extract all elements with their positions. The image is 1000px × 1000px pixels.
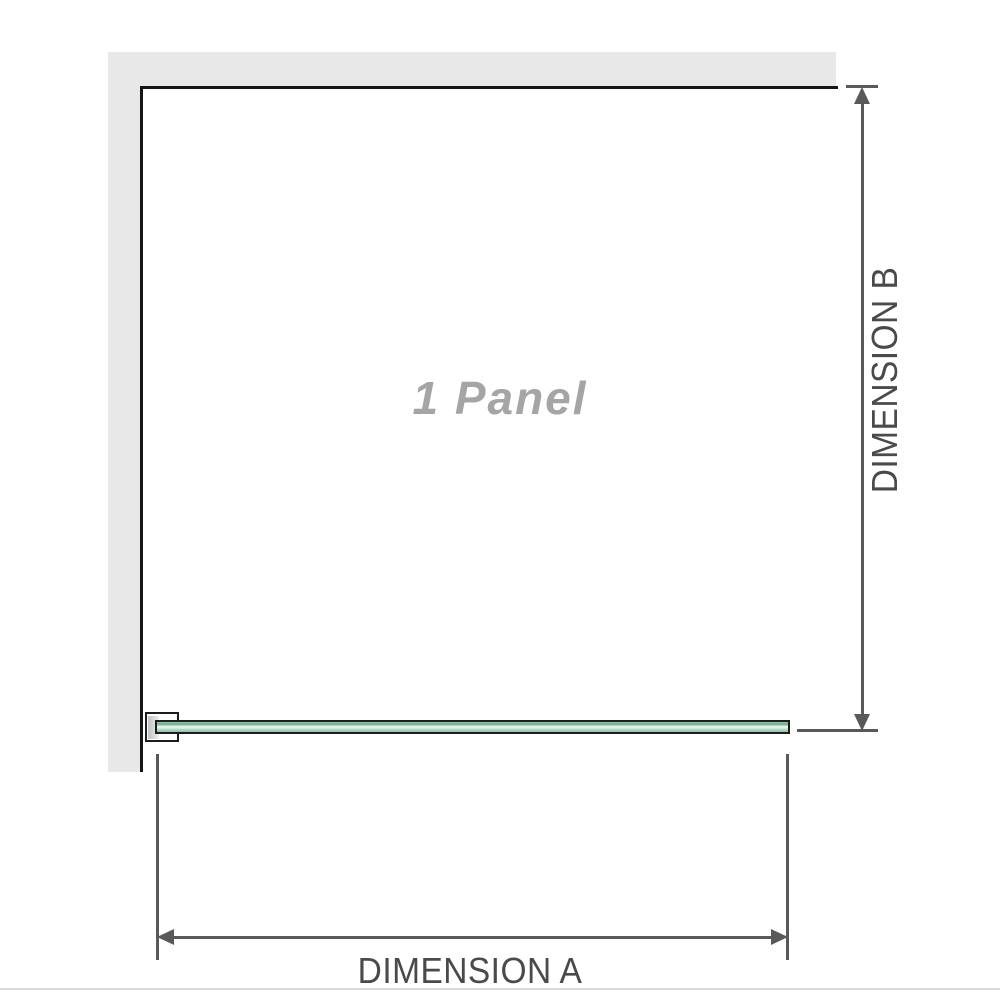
wall-top-strip [108,52,836,86]
panel-outline-left [140,86,143,772]
dimension-a-line [170,936,775,939]
panel-outline-top [140,86,838,89]
shower-panel-diagram: 1 Panel DIMENSION B DIMENSION A [0,0,1000,1000]
dimension-a-label: DIMENSION A [358,950,583,992]
glass-panel-bar [155,720,790,734]
dimension-b-label: DIMENSION B [864,267,906,493]
arrow-left-icon [157,929,174,945]
arrow-up-icon [854,87,870,104]
arrow-right-icon [771,929,788,945]
arrow-down-icon [854,714,870,731]
bottom-separator-line [0,988,1000,990]
panel-label: 1 Panel [412,371,587,425]
wall-left-strip [108,52,140,772]
